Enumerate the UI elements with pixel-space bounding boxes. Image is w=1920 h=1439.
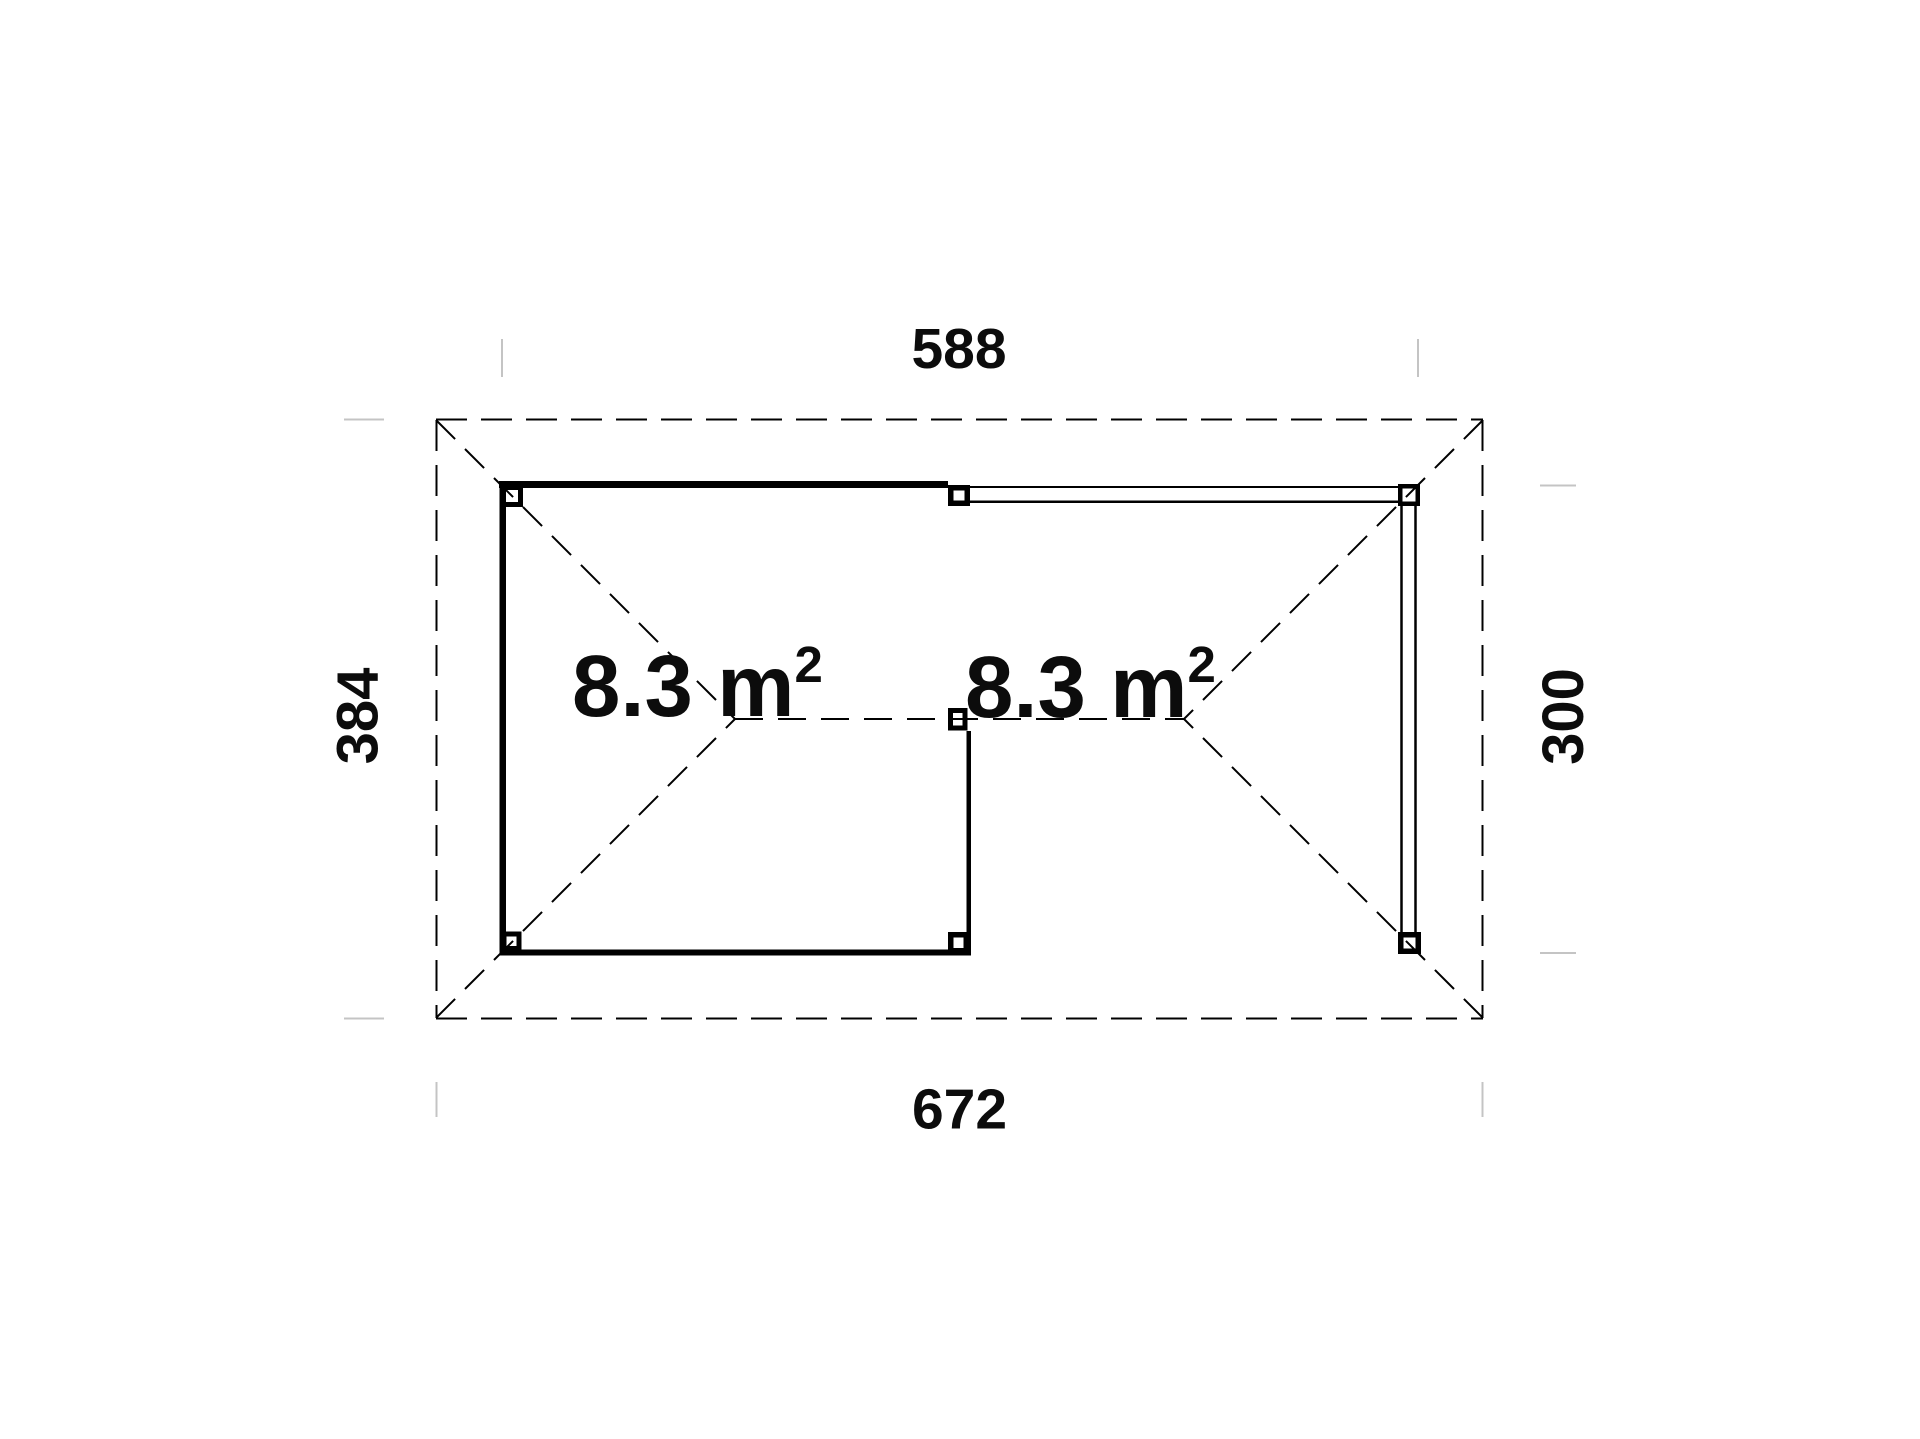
svg-text:384: 384	[326, 668, 391, 765]
svg-text:672: 672	[912, 1078, 1007, 1142]
svg-text:8.3 m2: 8.3 m2	[965, 636, 1216, 736]
svg-text:588: 588	[911, 317, 1006, 381]
svg-text:8.3 m2: 8.3 m2	[572, 636, 823, 735]
svg-text:300: 300	[1531, 668, 1596, 765]
